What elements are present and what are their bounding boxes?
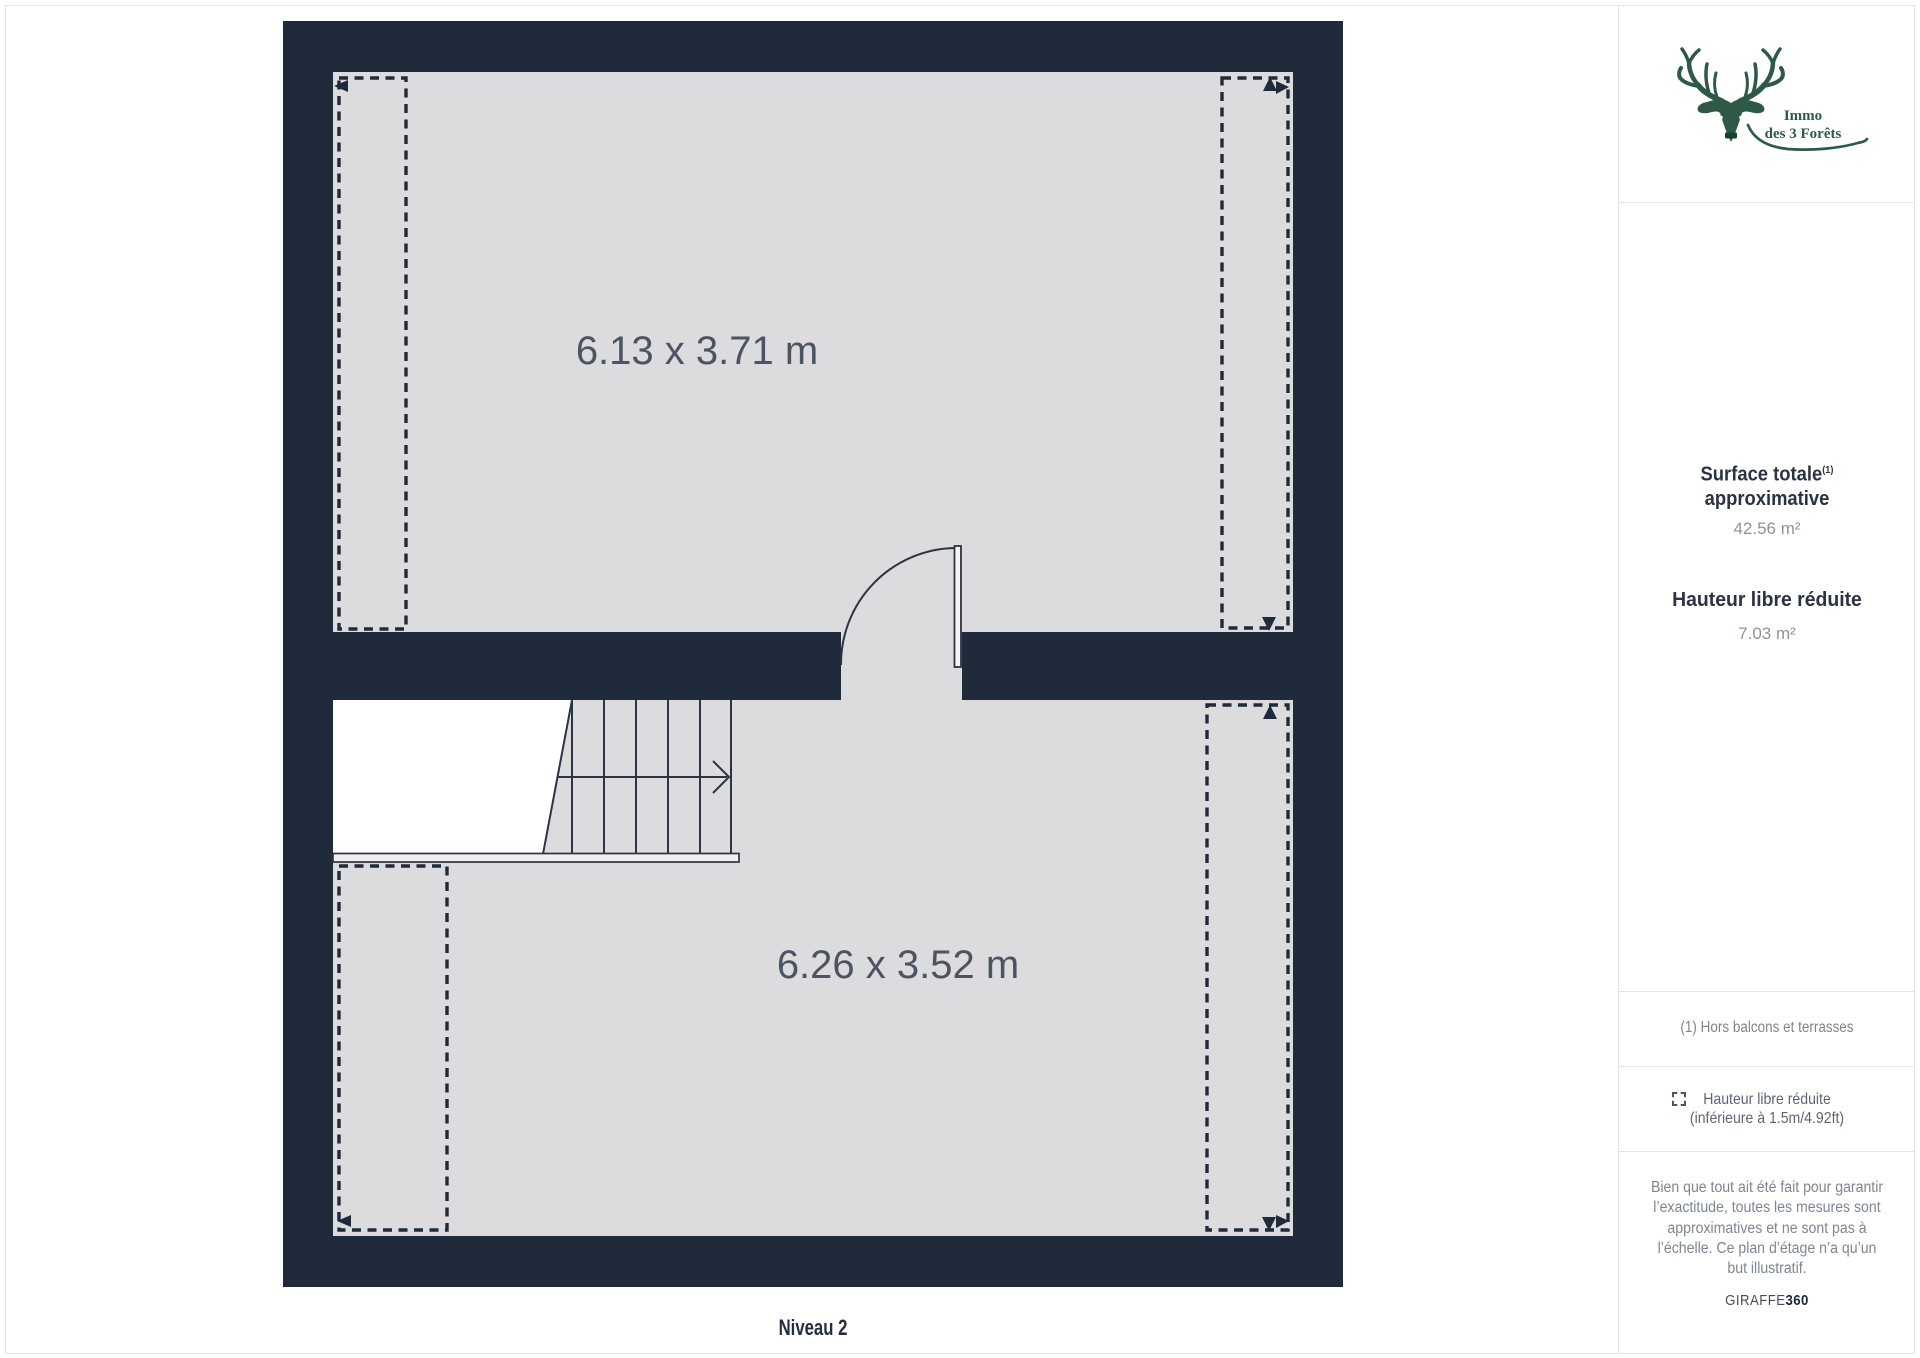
svg-text:6.13 x 3.71 m: 6.13 x 3.71 m [576,329,818,373]
svg-text:6.26 x 3.52 m: 6.26 x 3.52 m [777,943,1019,987]
